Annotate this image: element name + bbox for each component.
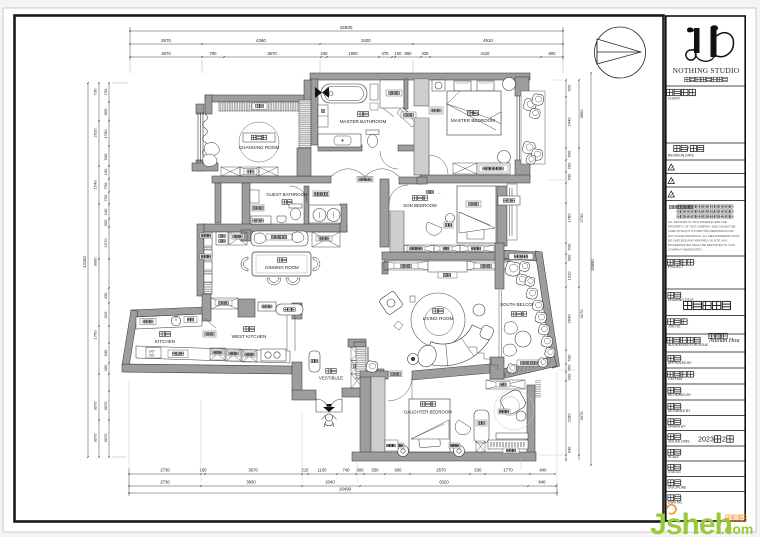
svg-text:800: 800: [549, 51, 557, 56]
svg-text:3070: 3070: [93, 401, 98, 411]
svg-text:300: 300: [567, 254, 572, 261]
svg-text:530: 530: [567, 354, 572, 361]
svg-text:VESTIBULE: VESTIBULE: [319, 376, 343, 381]
svg-text:590: 590: [567, 150, 572, 157]
svg-text:6320: 6320: [439, 480, 449, 485]
svg-text:740: 740: [343, 468, 351, 473]
svg-text:2023: 2023: [698, 435, 714, 444]
svg-text:1540: 1540: [93, 180, 98, 190]
svg-text:470: 470: [382, 51, 390, 56]
svg-text:15930: 15930: [340, 25, 353, 30]
svg-text:2730: 2730: [160, 480, 170, 485]
svg-text:ALL DESIGNS OF THIS DRAWING AR: ALL DESIGNS OF THIS DRAWING ARE THE: [668, 220, 727, 224]
svg-text:NOTHING STUDIO: NOTHING STUDIO: [673, 66, 740, 75]
svg-text:DAUGHTER BEDROOM: DAUGHTER BEDROOM: [404, 410, 452, 415]
svg-text:REVIEWED BY: REVIEWED BY: [668, 393, 692, 397]
svg-text:1770: 1770: [503, 468, 513, 473]
svg-text:14160: 14160: [82, 256, 87, 268]
svg-text:620: 620: [567, 84, 572, 91]
svg-text:2670: 2670: [161, 51, 171, 56]
svg-text:GUEST BATHROOM: GUEST BATHROOM: [266, 192, 308, 197]
svg-text:3670: 3670: [248, 468, 258, 473]
svg-text:100: 100: [395, 51, 403, 56]
svg-text:1100: 1100: [317, 468, 327, 473]
svg-text:4110: 4110: [480, 51, 490, 56]
svg-text:3420: 3420: [361, 38, 371, 43]
svg-text:APPROVED BY: APPROVED BY: [668, 361, 692, 365]
svg-text:730: 730: [103, 88, 108, 95]
svg-text:3830: 3830: [246, 480, 256, 485]
svg-text:.com: .com: [721, 521, 754, 537]
svg-text:NOT SCALE DRAWINGS. ALL MEASUR: NOT SCALE DRAWINGS. ALL MEASUREMENT MUST: [668, 234, 740, 238]
svg-text:2730: 2730: [160, 468, 170, 473]
svg-text:3850: 3850: [579, 109, 584, 119]
svg-text:LIVING ROOM: LIVING ROOM: [423, 316, 454, 321]
svg-text:1900: 1900: [348, 51, 358, 56]
svg-text:3570: 3570: [267, 51, 277, 56]
svg-text:2570: 2570: [436, 468, 446, 473]
svg-text:WEST KITCHEN: WEST KITCHEN: [232, 334, 267, 339]
svg-text:3070: 3070: [103, 433, 108, 443]
svg-text:340: 340: [567, 446, 572, 453]
svg-text:2: 2: [722, 435, 726, 444]
svg-text:530: 530: [567, 243, 572, 250]
svg-text:790: 790: [210, 51, 218, 56]
svg-text:2270: 2270: [103, 238, 108, 248]
svg-text:CHANGING ROOM: CHANGING ROOM: [239, 145, 279, 150]
svg-text:4910: 4910: [483, 38, 493, 43]
svg-text:1780: 1780: [567, 213, 572, 223]
svg-text:CAPTAIN: CAPTAIN: [668, 377, 683, 381]
svg-text:840: 840: [539, 480, 547, 485]
svg-text:1780: 1780: [103, 129, 108, 139]
svg-text:2040: 2040: [325, 480, 335, 485]
svg-text:KITCHEN: KITCHEN: [155, 339, 175, 344]
svg-text:290: 290: [567, 162, 572, 169]
svg-text:3070: 3070: [579, 411, 584, 421]
svg-text:210: 210: [302, 468, 310, 473]
svg-text:2280: 2280: [567, 413, 572, 423]
svg-text:AUTHORIZED FOR ISSUE: AUTHORIZED FOR ISSUE: [668, 343, 709, 347]
svg-text:750: 750: [103, 194, 108, 201]
svg-text:3070: 3070: [103, 401, 108, 411]
svg-text:SCALE: SCALE: [668, 455, 680, 459]
svg-text:MASTER BATHROOM: MASTER BATHROOM: [340, 119, 387, 124]
svg-text:290: 290: [567, 373, 572, 380]
svg-text:DISCREPANCIES SHALL BE REPORTE: DISCREPANCIES SHALL BE REPORTED TO THIS: [668, 243, 735, 247]
svg-text:330: 330: [422, 51, 430, 56]
svg-text:950: 950: [405, 51, 413, 56]
svg-text:3070: 3070: [93, 433, 98, 443]
svg-text:OO: OO: [149, 354, 155, 358]
svg-text:1010: 1010: [567, 271, 572, 281]
svg-text:2670: 2670: [161, 38, 171, 43]
svg-text:300: 300: [357, 468, 365, 473]
svg-text:PROJECT: PROJECT: [668, 265, 683, 269]
svg-text:730: 730: [93, 88, 98, 95]
svg-text:USED WITHOUT ITS WRITTEN PERMI: USED WITHOUT ITS WRITTEN PERMISSION OR: [668, 229, 734, 233]
svg-text:DESIGNED BY: DESIGNED BY: [668, 409, 691, 413]
svg-text:MASTER BEDROOM: MASTER BEDROOM: [451, 118, 495, 123]
svg-text:ISSUED DATE: ISSUED DATE: [668, 440, 691, 444]
svg-text:660: 660: [103, 108, 108, 115]
svg-text:DRAWN BY: DRAWN BY: [668, 425, 686, 429]
svg-text:JOB NO.: JOB NO.: [668, 325, 681, 329]
svg-text:190: 190: [103, 168, 108, 175]
svg-text:920: 920: [103, 311, 108, 318]
svg-text:→: →: [437, 190, 441, 195]
svg-text:4360: 4360: [256, 38, 266, 43]
svg-text:500: 500: [103, 153, 108, 160]
svg-text:160: 160: [200, 468, 208, 473]
svg-text:DINNING ROOM: DINNING ROOM: [265, 265, 299, 270]
svg-text:2730: 2730: [579, 213, 584, 223]
svg-text:900: 900: [395, 468, 403, 473]
svg-text:3000: 3000: [93, 257, 98, 267]
svg-text:4170: 4170: [579, 309, 584, 319]
svg-text:550: 550: [372, 468, 380, 473]
svg-text:PROPERTY OF THIS COMPANY AND C: PROPERTY OF THIS COMPANY AND CANNOT BE: [668, 225, 736, 229]
svg-text:BE CHECKED AND VERIFIED ON SIT: BE CHECKED AND VERIFIED ON SITE. ANY: [668, 238, 728, 242]
svg-text:500: 500: [567, 173, 572, 180]
svg-text:DISCIPLINE: DISCIPLINE: [668, 486, 687, 490]
svg-text:REVISION.DATE: REVISION.DATE: [668, 154, 695, 158]
svg-text:450: 450: [567, 364, 572, 371]
svg-text:COMPANY IMMEDIATELY.: COMPANY IMMEDIATELY.: [668, 248, 703, 252]
svg-text:CLIENT: CLIENT: [668, 97, 680, 101]
svg-text:16490: 16490: [339, 487, 352, 492]
svg-text:530: 530: [475, 468, 483, 473]
svg-text:300: 300: [103, 219, 108, 226]
svg-text:240: 240: [103, 208, 108, 215]
svg-text:840: 840: [540, 468, 548, 473]
svg-text:SON BEDROOM: SON BEDROOM: [403, 203, 437, 208]
svg-text:2640: 2640: [567, 314, 572, 324]
svg-text:430: 430: [103, 292, 108, 299]
svg-text:2440: 2440: [567, 117, 572, 127]
svg-text:Jsheh: Jsheh: [650, 508, 732, 537]
svg-text:640: 640: [103, 349, 108, 356]
svg-text:2920: 2920: [93, 128, 98, 138]
svg-text:STATUS: STATUS: [668, 470, 681, 474]
svg-text:280: 280: [103, 364, 108, 371]
svg-text:16690: 16690: [590, 259, 595, 271]
svg-text:1760: 1760: [93, 330, 98, 340]
svg-text:790: 790: [103, 182, 108, 189]
svg-text:240: 240: [321, 51, 329, 56]
